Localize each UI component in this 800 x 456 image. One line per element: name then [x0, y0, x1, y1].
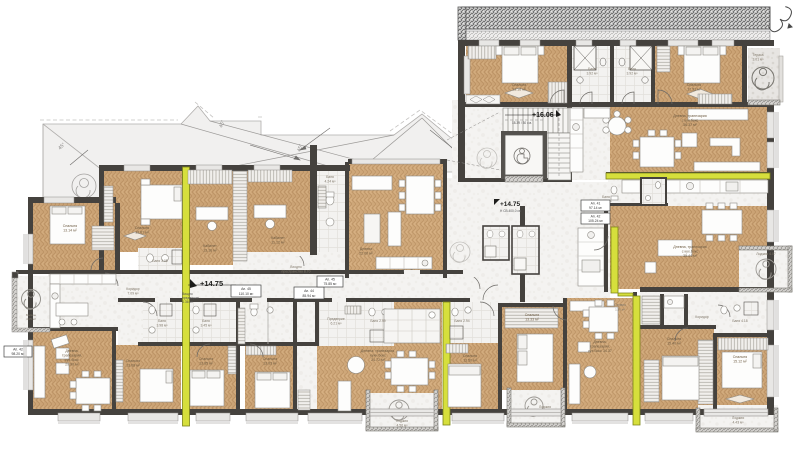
svg-text:3.01 м²: 3.01 м² [752, 58, 764, 62]
svg-text:кух.бокс: кух.бокс [65, 358, 79, 362]
svg-text:13.50 м²: 13.50 м² [463, 359, 477, 363]
svg-text:4.05 м²: 4.05 м² [26, 317, 36, 321]
svg-text:Входно: Входно [290, 265, 302, 269]
svg-text:пространство 8.70: пространство 8.70 [282, 270, 311, 274]
svg-text:Кабинет: Кабинет [271, 236, 285, 240]
svg-text:13.16 м²: 13.16 м² [512, 88, 526, 92]
svg-text:18.39 / 30 с.в.: 18.39 / 30 с.в. [512, 121, 532, 125]
svg-text:Дневна,: Дневна, [593, 340, 606, 344]
svg-text:кухн.бокс: кухн.бокс [370, 354, 386, 358]
svg-text:97.14 м²: 97.14 м² [589, 206, 603, 210]
svg-text:4.36 м²: 4.36 м² [182, 300, 194, 304]
svg-text:+14.75: +14.75 [500, 201, 520, 208]
svg-text:Тераса: Тераса [752, 53, 763, 57]
svg-text:Спальня: Спальня [199, 357, 213, 361]
svg-text:3.92 м²: 3.92 м² [626, 72, 638, 76]
svg-text:Дневна, трапезария: Дневна, трапезария [673, 114, 706, 118]
svg-text:3.98 м²: 3.98 м² [156, 324, 168, 328]
svg-text:Дневна, трапезария: Дневна, трапезария [673, 245, 706, 249]
svg-text:Спальня: Спальня [126, 359, 140, 363]
svg-text:75.85 м²: 75.85 м² [324, 282, 338, 286]
svg-text:Спальня: Спальня [687, 83, 701, 87]
svg-text:Баня 2.94: Баня 2.94 [454, 319, 469, 323]
svg-text:Баня 4.18: Баня 4.18 [732, 319, 747, 323]
svg-text:с кух.бокс: с кух.бокс [682, 119, 699, 123]
svg-text:15.40 м²: 15.40 м² [667, 342, 681, 346]
svg-text:17.33 м²: 17.33 м² [687, 88, 701, 92]
svg-text:13.14 м²: 13.14 м² [63, 229, 77, 233]
svg-text:Баня 2.99: Баня 2.99 [370, 319, 385, 323]
svg-text:Коридор: Коридор [695, 315, 709, 319]
svg-text:+16.06: +16.06 [532, 112, 554, 119]
svg-text:Дневна, трапезария,: Дневна, трапезария, [361, 349, 395, 353]
svg-text:Спальня: Спальня [667, 337, 681, 341]
svg-text:Лоджия 4.07: Лоджия 4.07 [756, 252, 776, 256]
svg-text:29.90 м²: 29.90 м² [65, 363, 79, 367]
svg-text:98.20 м²: 98.20 м² [12, 352, 26, 356]
svg-text:35.44 м²: 35.44 м² [683, 254, 697, 258]
svg-text:1.50 м²: 1.50 м² [615, 308, 625, 312]
svg-text:Спальня: Спальня [525, 313, 539, 317]
svg-text:13.01 м²: 13.01 м² [135, 231, 149, 235]
svg-text:Спальня: Спальня [263, 357, 277, 361]
svg-text:Кабинет: Кабинет [203, 244, 217, 248]
svg-text:Баня: Баня [588, 67, 596, 71]
svg-text:Спальня: Спальня [63, 224, 77, 228]
svg-text:Лоджия: Лоджия [396, 419, 408, 423]
svg-text:Спальня: Спальня [733, 355, 747, 359]
svg-text:7.09 м²: 7.09 м² [127, 292, 139, 296]
svg-text:Предверие: Предверие [327, 317, 345, 321]
svg-text:24.72 м²: 24.72 м² [371, 358, 385, 362]
svg-text:Спальня: Спальня [463, 354, 477, 358]
svg-text:с кух.бокс: с кух.бокс [682, 250, 699, 254]
svg-text:Баня: Баня [602, 195, 610, 199]
svg-text:трапезария,: трапезария, [590, 345, 610, 349]
svg-text:Ап. 45: Ап. 45 [241, 287, 251, 291]
svg-text:Коридор: Коридор [126, 287, 140, 291]
svg-text:11.12 м²: 11.12 м² [271, 241, 285, 245]
svg-text:Спальня: Спальня [135, 226, 149, 230]
svg-text:4.43 м²: 4.43 м² [732, 421, 744, 425]
svg-text:Лоджия: Лоджия [539, 405, 551, 409]
svg-text:Баня: Баня [628, 67, 636, 71]
svg-text:Н СВ.400.0 см: Н СВ.400.0 см [500, 209, 521, 213]
svg-text:трапезария,: трапезария, [62, 354, 82, 358]
svg-text:110.10 м²: 110.10 м² [239, 292, 254, 296]
svg-text:3.92 м²: 3.92 м² [586, 72, 598, 76]
svg-text:Сервиз: Сервиз [614, 303, 626, 307]
svg-text:13.03 м²: 13.03 м² [263, 362, 277, 366]
svg-text:Ап. 42: Ап. 42 [591, 215, 601, 219]
svg-text:Спальня: Спальня [512, 83, 526, 87]
svg-text:Ап. 44: Ап. 44 [304, 289, 314, 293]
svg-text:Баня: Баня [158, 319, 166, 323]
svg-text:85.94 м²: 85.94 м² [303, 294, 317, 298]
svg-text:Баня 3.05: Баня 3.05 [152, 259, 167, 263]
svg-text:13.68 м²: 13.68 м² [126, 364, 140, 368]
svg-text:105.24 м²: 105.24 м² [588, 219, 604, 223]
svg-text:6.21 м²: 6.21 м² [330, 322, 342, 326]
svg-text:15.12 м²: 15.12 м² [733, 360, 747, 364]
svg-text:Дневна: Дневна [360, 247, 372, 251]
svg-text:Дневна,: Дневна, [65, 349, 78, 353]
svg-text:кух.бокс 34.37: кух.бокс 34.37 [588, 349, 612, 353]
svg-text:Ап. 41: Ап. 41 [591, 202, 601, 206]
svg-text:4.24 м²: 4.24 м² [324, 180, 336, 184]
svg-text:+14.75: +14.75 [200, 279, 223, 288]
svg-text:22.06 м²: 22.06 м² [359, 252, 373, 256]
svg-text:Баня: Баня [202, 319, 210, 323]
svg-text:13.85 м²: 13.85 м² [199, 362, 213, 366]
svg-text:13.33 м²: 13.33 м² [525, 318, 539, 322]
svg-text:4.56 м²: 4.56 м² [396, 424, 408, 428]
svg-text:36.37 м²: 36.37 м² [683, 123, 697, 127]
svg-text:Ап. 45: Ап. 45 [325, 278, 335, 282]
svg-text:Ап. 42: Ап. 42 [13, 348, 23, 352]
svg-text:13.16 м²: 13.16 м² [203, 249, 217, 253]
svg-text:3.45 м²: 3.45 м² [200, 324, 212, 328]
svg-text:Лоджия: Лоджия [732, 416, 744, 420]
svg-text:Баня: Баня [326, 175, 334, 179]
